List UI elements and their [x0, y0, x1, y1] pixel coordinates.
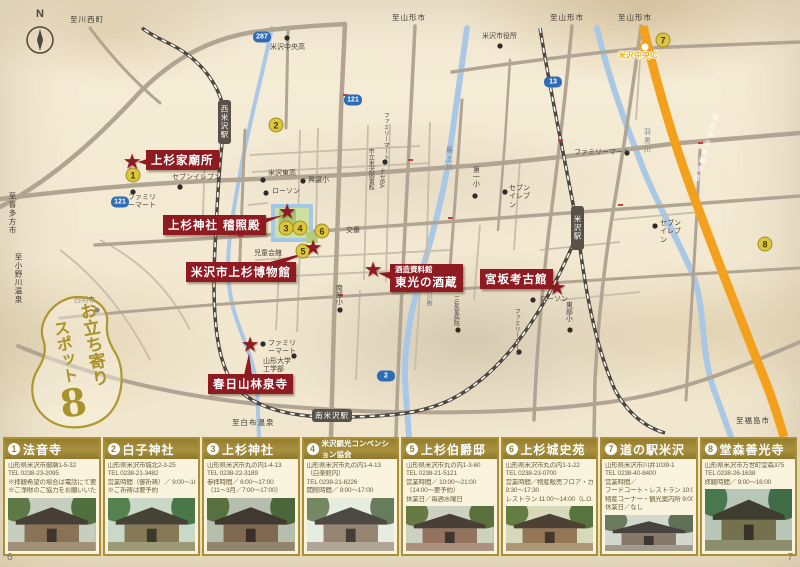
spot-photo — [307, 498, 395, 551]
detail-line: 営業時間／物産販売フロア・カフェ — [506, 479, 594, 487]
spot-card: 3 上杉神社 山形県米沢市丸の内1-4-13 TEL 0238-22-3189 … — [202, 437, 300, 556]
map-label: 興譲小 — [308, 177, 329, 185]
spot-photo — [705, 489, 793, 551]
map-label: 市立米沢図書館 — [366, 148, 373, 190]
spot-card-header: 2 白子神社 — [105, 439, 199, 459]
spot-card-details: 山形県米沢市丸の内1-3-60 TEL 0238-21-5121 営業時間／ 1… — [403, 459, 497, 505]
detail-line: TEL 0238-21-5121 — [406, 470, 494, 478]
spot-marker: 8 — [758, 237, 773, 252]
detail-line: TEL 0238-26-1638 — [705, 470, 793, 478]
detail-line: TEL 0238-21-6226 — [307, 479, 395, 487]
river-label: 羽黒川 — [642, 128, 650, 155]
map-label: ファミリーマート — [268, 340, 296, 357]
spot-card-details: 山形県米沢市川井1039-1 TEL 0238-40-8400 営業時間／ フー… — [602, 459, 696, 514]
brochure-page: N 至川西町 至山形市 至山形市 至山形市 米沢中央IC 東北中央自動車道 羽黒… — [0, 0, 800, 567]
landmark-label: 上杉家廟所 — [146, 150, 219, 170]
detail-line: 山形県米沢市御廟1-5-32 — [8, 462, 96, 470]
map-label: セブンイレブン — [172, 174, 221, 182]
spot-card-details: 山形県米沢市御廟1-5-32 TEL 0238-23-2095 ※拝観希望の場合… — [5, 459, 99, 497]
landmark-star: ★ — [278, 202, 297, 223]
spot-number-badge: 8 — [705, 443, 717, 455]
spot-number-badge: 4 — [307, 443, 319, 455]
spot-card-header: 3 上杉神社 — [204, 439, 298, 459]
detail-line: TEL 0238-23-0700 — [506, 470, 594, 478]
detail-line: 山形県米沢市万世町堂森375 — [705, 462, 793, 470]
detail-line: TEL 0238-21-3482 — [108, 470, 196, 478]
landmark-sublabel: 酒造資料館 — [395, 266, 458, 274]
route-shield: 287 — [253, 32, 271, 43]
compass: N — [22, 8, 58, 66]
detail-line: フードコート・レストラン 10:00～18:00 — [605, 487, 693, 495]
spot-card-details: 山形県米沢市城北2-3-25 TEL 0238-21-3482 営業時間（御祈祷… — [105, 459, 199, 497]
landmark-label: 春日山林泉寺 — [208, 374, 293, 394]
spot-card-header: 4 米沢観光コンベンション協会 — [304, 439, 398, 459]
map-label: ファミリーマート — [381, 112, 388, 160]
minor-roads-layer — [60, 60, 700, 380]
page-number-left: 6 — [7, 552, 13, 563]
station-label: 米沢駅 — [571, 206, 584, 250]
landmark-label: 宮坂考古館 — [480, 269, 553, 289]
spot-photo — [605, 515, 693, 551]
spot-number-badge: 2 — [108, 443, 120, 455]
spot-number-badge: 1 — [8, 443, 20, 455]
spot-card-title: 米沢観光コンベンション協会 — [322, 438, 395, 460]
map-label: 三友堂病院 — [451, 296, 458, 326]
spot-marker: 7 — [656, 33, 671, 48]
road-ticks-layer — [238, 94, 703, 296]
detail-line: TEL 0238-22-3189 — [207, 470, 295, 478]
spot-card-header: 1 法音寺 — [5, 439, 99, 459]
map-label: 至白布温泉 — [232, 418, 275, 427]
spot-card-header: 5 上杉伯爵邸 — [403, 439, 497, 459]
spot-card-details: 山形県米沢市丸の内1-4-13 TEL 0238-22-3189 参拝時間／ 6… — [204, 459, 298, 497]
detail-line: 休業日／なし — [605, 504, 693, 512]
map-label: 南部小 — [334, 284, 342, 305]
map-label: 至福島市 — [736, 416, 770, 425]
spot-number-badge: 3 — [207, 443, 219, 455]
spot-card: 6 上杉城史苑 山形県米沢市丸の内1-1-22 TEL 0238-23-0700… — [501, 437, 599, 556]
map-label: 至山形市 — [392, 13, 426, 22]
spot-card-title: 法音寺 — [23, 441, 62, 458]
detail-line: （11～3月／7:00～17:00） — [207, 487, 295, 495]
map-label: 至山形市 — [618, 13, 652, 22]
spot-card-details: 山形県米沢市万世町堂森375 TEL 0238-26-1638 拝観時間／ 9:… — [702, 459, 796, 488]
spot-marker: 2 — [269, 118, 284, 133]
map-label: 至喜多方市 — [8, 192, 17, 235]
map-label: 至山形市 — [550, 13, 584, 22]
route-shield: 13 — [544, 77, 562, 88]
detail-line: TEL 0238-40-8400 — [605, 470, 693, 478]
spot-card: 8 堂森善光寺 山形県米沢市万世町堂森375 TEL 0238-26-1638 … — [700, 437, 798, 556]
landmark-label: 上杉神社 稽照殿 — [163, 215, 266, 235]
spot-card: 4 米沢観光コンベンション協会 山形県米沢市丸の内1-4-13 （白楽館内） T… — [302, 437, 400, 556]
spot-number-badge: 7 — [605, 443, 617, 455]
map-label: セブンイレブン — [660, 220, 686, 245]
detail-line: 物産コーナー・観光案内所 9:00～18:30 — [605, 496, 693, 504]
spot-card-details: 山形県米沢市丸の内1-4-13 （白楽館内） TEL 0238-21-6226 … — [304, 459, 398, 497]
map-label: ナセBA — [377, 168, 384, 188]
map-label: 至川西町 — [70, 15, 104, 24]
detail-line: 参拝時間／ 6:00～17:00 — [207, 479, 295, 487]
detail-line: ※拝観希望の場合は電話にて要予約 — [8, 479, 96, 487]
stopover-spots-badge: お立ち寄り スポット 8 — [26, 294, 130, 434]
landmark-star: ★ — [304, 238, 323, 259]
map-label: 児童会館 — [254, 250, 282, 258]
spot-number-badge: 6 — [506, 443, 518, 455]
spot-card-title: 白子神社 — [123, 441, 175, 458]
spot-card: 5 上杉伯爵邸 山形県米沢市丸の内1-3-60 TEL 0238-21-5121… — [401, 437, 499, 556]
detail-line: 開館時間／ 9:00～17:00 — [307, 487, 395, 495]
landmark-star: ★ — [241, 335, 260, 356]
detail-line: （14:00～要予約） — [406, 487, 494, 495]
map-label: 米沢中央高 — [270, 44, 305, 52]
detail-line: ※ご祈祷は要予約 — [108, 487, 196, 495]
detail-line: TEL 0238-23-2095 — [8, 470, 96, 478]
map-label: 山形大学工学部 — [263, 358, 293, 375]
spot-card-title: 上杉城史苑 — [521, 441, 586, 458]
spot-card-title: 堂森善光寺 — [720, 441, 785, 458]
map-label: 交番 — [346, 227, 360, 235]
landmark-label: 酒造資料館 東光の酒蔵 — [390, 264, 463, 292]
detail-line: 営業時間（御祈祷）／ 9:00～16:00 — [108, 479, 196, 487]
detail-line: 山形県米沢市丸の内1-4-13 — [207, 462, 295, 470]
spot-photo — [207, 498, 295, 551]
station-label: 南米沢駅 — [312, 409, 352, 422]
landmark-title: 東光の酒蔵 — [395, 275, 458, 289]
river-label: 最上川 — [444, 146, 452, 173]
spot-photo — [8, 498, 96, 551]
spot-card-title: 道の駅米沢 — [620, 441, 685, 458]
detail-line: （白楽館内） — [307, 470, 395, 478]
detail-line: ※ご浄財のご協力をお願いいたします — [8, 487, 96, 495]
detail-line: 営業時間／ 10:00～21:00 — [406, 479, 494, 487]
page-number-right: 7 — [787, 552, 793, 563]
interchange-label: 米沢中央IC — [618, 51, 658, 61]
spot-card-header: 6 上杉城史苑 — [503, 439, 597, 459]
spot-photo — [108, 498, 196, 551]
detail-line: レストラン 11:00～14:00（L.O.） — [506, 496, 594, 504]
map-label: 第一小 — [471, 166, 479, 187]
spot-card-title: 上杉伯爵邸 — [421, 441, 486, 458]
spot-card: 1 法音寺 山形県米沢市御廟1-5-32 TEL 0238-23-2095 ※拝… — [3, 437, 101, 556]
spot-card: 7 道の駅米沢 山形県米沢市川井1039-1 TEL 0238-40-8400 … — [600, 437, 698, 556]
station-label: 西米沢駅 — [218, 100, 231, 144]
map-label: 至小野川温泉 — [14, 253, 23, 304]
map-area: N 至川西町 至山形市 至山形市 至山形市 米沢中央IC 東北中央自動車道 羽黒… — [0, 0, 800, 437]
route-shield: 2 — [377, 371, 395, 382]
map-label: セブンイレブン — [509, 185, 535, 210]
detail-line: 営業時間／ — [605, 479, 693, 487]
map-label: 米沢市役所 — [482, 33, 517, 41]
detail-line: 山形県米沢市丸の内1-1-22 — [506, 462, 594, 470]
spot-card-header: 7 道の駅米沢 — [602, 439, 696, 459]
map-label: ローソン — [272, 188, 300, 196]
landmark-star: ★ — [123, 152, 142, 173]
spot-cards-strip: 1 法音寺 山形県米沢市御廟1-5-32 TEL 0238-23-2095 ※拝… — [3, 437, 797, 556]
landmark-star: ★ — [364, 260, 383, 281]
detail-line: 9:30～17:30 — [506, 487, 594, 495]
landmark-label: 米沢市上杉博物館 — [186, 262, 296, 282]
map-label: ファミリーマート — [128, 194, 158, 211]
spot-card-details: 山形県米沢市丸の内1-1-22 TEL 0238-23-0700 営業時間／物産… — [503, 459, 597, 505]
spot-number-badge: 5 — [406, 443, 418, 455]
route-shield: 121 — [344, 95, 362, 106]
spot-card-header: 8 堂森善光寺 — [702, 439, 796, 459]
spot-card: 2 白子神社 山形県米沢市城北2-3-25 TEL 0238-21-3482 営… — [103, 437, 201, 556]
detail-line: 山形県米沢市川井1039-1 — [605, 462, 693, 470]
detail-line: 拝観時間／ 9:00～16:00 — [705, 479, 793, 487]
detail-line: 休業日／毎週水曜日 — [406, 496, 494, 504]
detail-line: 山形県米沢市城北2-3-25 — [108, 462, 196, 470]
spot-photo — [406, 506, 494, 551]
spot-card-title: 上杉神社 — [222, 441, 274, 458]
route-shield: 121 — [111, 197, 129, 208]
map-label: 米沢東高 — [268, 170, 296, 178]
detail-line: 山形県米沢市丸の内1-4-13 — [307, 462, 395, 470]
compass-north-label: N — [22, 8, 58, 20]
map-label: ファミリーマート — [512, 308, 519, 356]
detail-line: 山形県米沢市丸の内1-3-60 — [406, 462, 494, 470]
spot-photo — [506, 506, 594, 551]
map-label: ファミリーマート — [574, 149, 630, 157]
